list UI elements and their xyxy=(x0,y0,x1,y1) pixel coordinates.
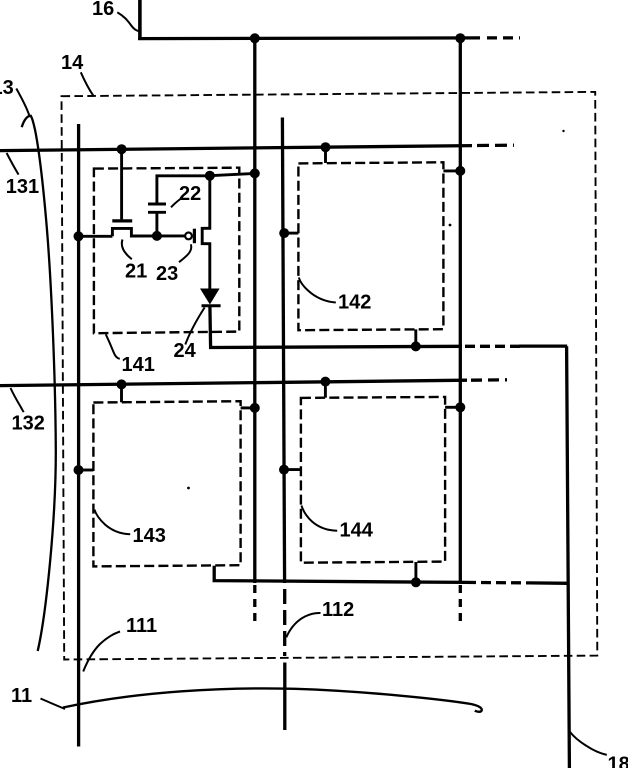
svg-text:144: 144 xyxy=(340,519,374,541)
svg-text:11: 11 xyxy=(11,685,32,707)
svg-text:22: 22 xyxy=(179,183,201,205)
svg-text:14: 14 xyxy=(61,52,84,74)
svg-text:21: 21 xyxy=(125,261,147,283)
svg-text:141: 141 xyxy=(122,354,155,376)
svg-text:18: 18 xyxy=(608,754,628,768)
svg-text:112: 112 xyxy=(322,599,354,621)
svg-text:142: 142 xyxy=(338,292,371,314)
svg-text:24: 24 xyxy=(174,340,197,362)
svg-text:131: 131 xyxy=(6,176,39,198)
svg-text:16: 16 xyxy=(92,0,114,20)
svg-text:132: 132 xyxy=(12,413,45,435)
svg-text:143: 143 xyxy=(133,525,166,547)
svg-text:23: 23 xyxy=(156,263,178,285)
svg-text:13: 13 xyxy=(0,77,14,99)
svg-text:111: 111 xyxy=(126,615,157,637)
